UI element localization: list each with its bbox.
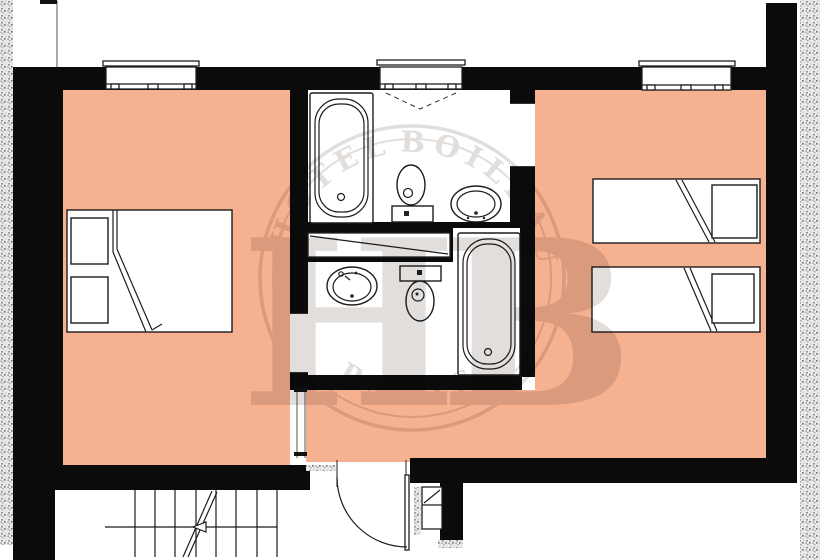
wall-stub-entrance [440,483,463,545]
wall-bottom-right [410,458,768,483]
wall-bottom-left [55,465,310,490]
nightstand-right-1 [712,185,757,238]
floorplan-image: HOTEL BOILEAU PARIS HB [0,0,820,560]
nightstand-left-1 [71,218,108,264]
wall-right [766,3,797,483]
stamp-monogram: HB [240,190,621,460]
facade-tick [40,0,57,4]
wall-left-lower [13,465,55,560]
window-bedroom-left [103,61,199,89]
floorplan-svg: HOTEL BOILEAU PARIS HB [0,0,820,560]
single-bed-2 [592,267,760,332]
staircase [105,490,277,557]
window-bedroom-right [639,61,735,90]
entrance-door-swing-arc [337,477,407,547]
nightstand-left-2 [71,277,108,323]
door-opening-bathroom-top [510,103,535,167]
wall-left-upper [13,67,63,465]
single-bed-1 [593,179,760,243]
entrance-door-leaf [405,475,409,550]
entrance-sill-hatch [306,465,336,471]
bedroom-left-furniture [67,210,232,332]
masonry-strip-left [0,0,13,545]
masonry-strip-right [800,0,820,560]
nightstand-right-2 [712,274,754,323]
